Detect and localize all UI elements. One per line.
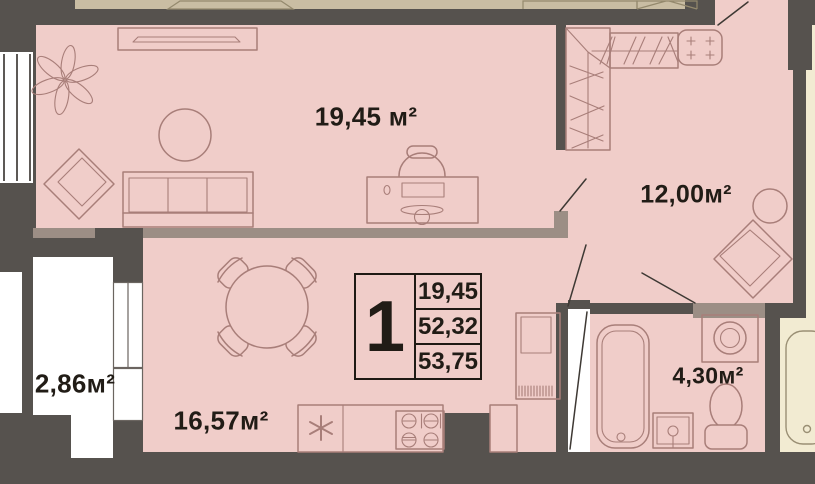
adjacent-bathtub-icon [786, 331, 815, 444]
fridge-icon [516, 313, 560, 399]
dining-table-icon [226, 266, 308, 348]
floor-plan: 19,45 м² 12,00м² 16,57м² 2,86м² 4,30м² 1… [0, 0, 815, 484]
window-mullions-icon [4, 54, 30, 181]
pouf-icon [678, 30, 722, 65]
label-living-area: 19,45 м² [315, 102, 418, 133]
side-table-icon [753, 189, 787, 223]
label-bedroom-area: 12,00м² [640, 181, 731, 210]
label-balcony-area: 2,86м² [35, 369, 115, 400]
label-kitchen-area: 16,57м² [173, 406, 268, 437]
legend-total-area: 53,75 [416, 345, 480, 378]
adjacent-furniture-icon [168, 1, 697, 9]
plant-icon [30, 44, 100, 115]
legend-values: 19,45 52,32 53,75 [416, 275, 480, 378]
sink-icon [310, 416, 332, 440]
washing-machine-icon [702, 315, 758, 362]
furniture-overlay [0, 0, 815, 484]
bath-sink-icon [653, 413, 693, 448]
sofa-icon [123, 172, 253, 227]
balcony-glazing-icon [114, 283, 143, 421]
legend-rooms-count: 1 [356, 275, 416, 378]
office-chair-icon [399, 146, 445, 225]
desk-icon [367, 177, 478, 223]
bathtub-icon [597, 325, 649, 448]
legend-box: 1 19,45 52,32 53,75 [354, 273, 482, 380]
legend-living-area: 19,45 [416, 275, 480, 310]
coffee-table-icon [159, 109, 211, 161]
kitchen-counter-icon [298, 405, 517, 452]
legend-area: 52,32 [416, 310, 480, 345]
label-bathroom-area: 4,30м² [672, 363, 743, 390]
wardrobe-icon [566, 28, 678, 150]
armchair-bedroom-icon [714, 220, 792, 298]
tv-cabinet-icon [118, 28, 257, 50]
stove-icon [396, 411, 444, 449]
armchair-living-icon [44, 149, 114, 219]
toilet-icon [705, 384, 747, 449]
